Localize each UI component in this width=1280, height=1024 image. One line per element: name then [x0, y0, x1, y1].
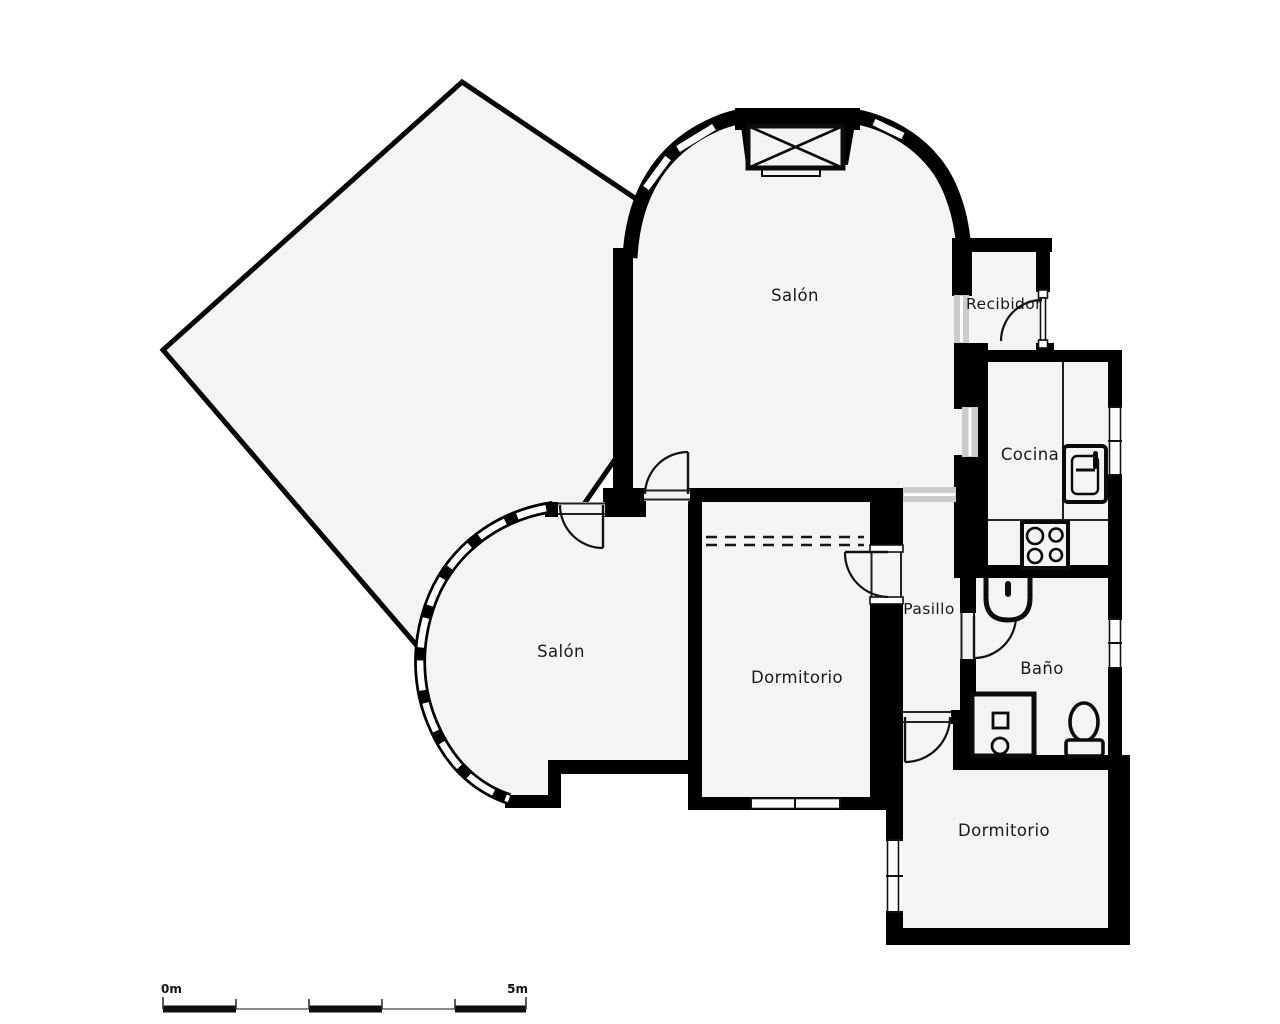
- room-label-bano: Baño: [1020, 659, 1064, 678]
- floorplan-svg: Salón Recibidor Cocina Salón Pasillo Dor…: [0, 0, 1280, 1024]
- room-label-dormitorio-right: Dormitorio: [958, 821, 1050, 840]
- room-label-recibidor: Recibidor: [966, 295, 1042, 313]
- room-floor-salon-top: [632, 116, 964, 500]
- scale-bar: 0m 5m: [161, 982, 528, 1009]
- bath-sink-icon: [986, 578, 1030, 620]
- scale-start-label: 0m: [161, 982, 182, 996]
- room-label-pasillo: Pasillo: [903, 600, 954, 618]
- shower-icon: [972, 694, 1034, 759]
- window-dormitorio-left: [751, 797, 840, 810]
- room-label-salon-bottom: Salón: [537, 642, 585, 661]
- stove-icon: [1022, 522, 1068, 568]
- window-dormitorio-right: [886, 840, 903, 912]
- room-label-salon-top: Salón: [771, 286, 819, 305]
- room-label-cocina: Cocina: [1001, 445, 1059, 464]
- fireplace-icon: [735, 108, 860, 176]
- room-label-dormitorio-left: Dormitorio: [751, 668, 843, 687]
- floorplan-canvas: Salón Recibidor Cocina Salón Pasillo Dor…: [0, 0, 1280, 1024]
- scale-end-label: 5m: [507, 982, 528, 996]
- window-cocina: [1108, 407, 1122, 475]
- window-bano: [1108, 619, 1122, 668]
- kitchen-sink-icon: [1064, 446, 1106, 502]
